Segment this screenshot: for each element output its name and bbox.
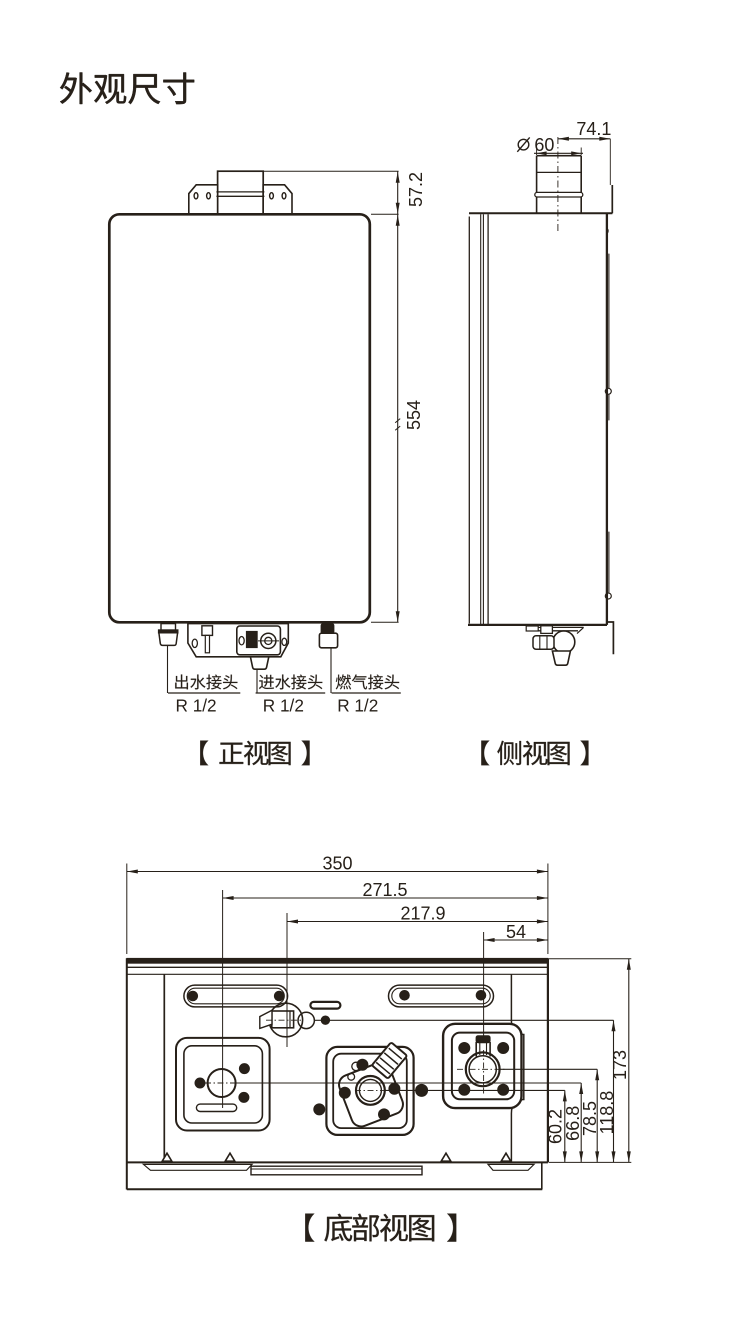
svg-text:57.2: 57.2 [406,172,426,207]
svg-text:217.9: 217.9 [401,903,446,923]
svg-text:118.8: 118.8 [597,1091,617,1135]
svg-text:350: 350 [323,853,353,873]
svg-text:54: 54 [506,922,526,942]
svg-text:271.5: 271.5 [363,880,408,900]
svg-text:60: 60 [534,135,554,155]
svg-text:R 1/2: R 1/2 [176,695,217,715]
svg-text:173: 173 [610,1050,630,1080]
svg-text:R 1/2: R 1/2 [263,695,304,715]
svg-text:74.1: 74.1 [576,119,611,139]
svg-text:R 1/2: R 1/2 [337,695,378,715]
svg-text:554: 554 [404,400,424,430]
